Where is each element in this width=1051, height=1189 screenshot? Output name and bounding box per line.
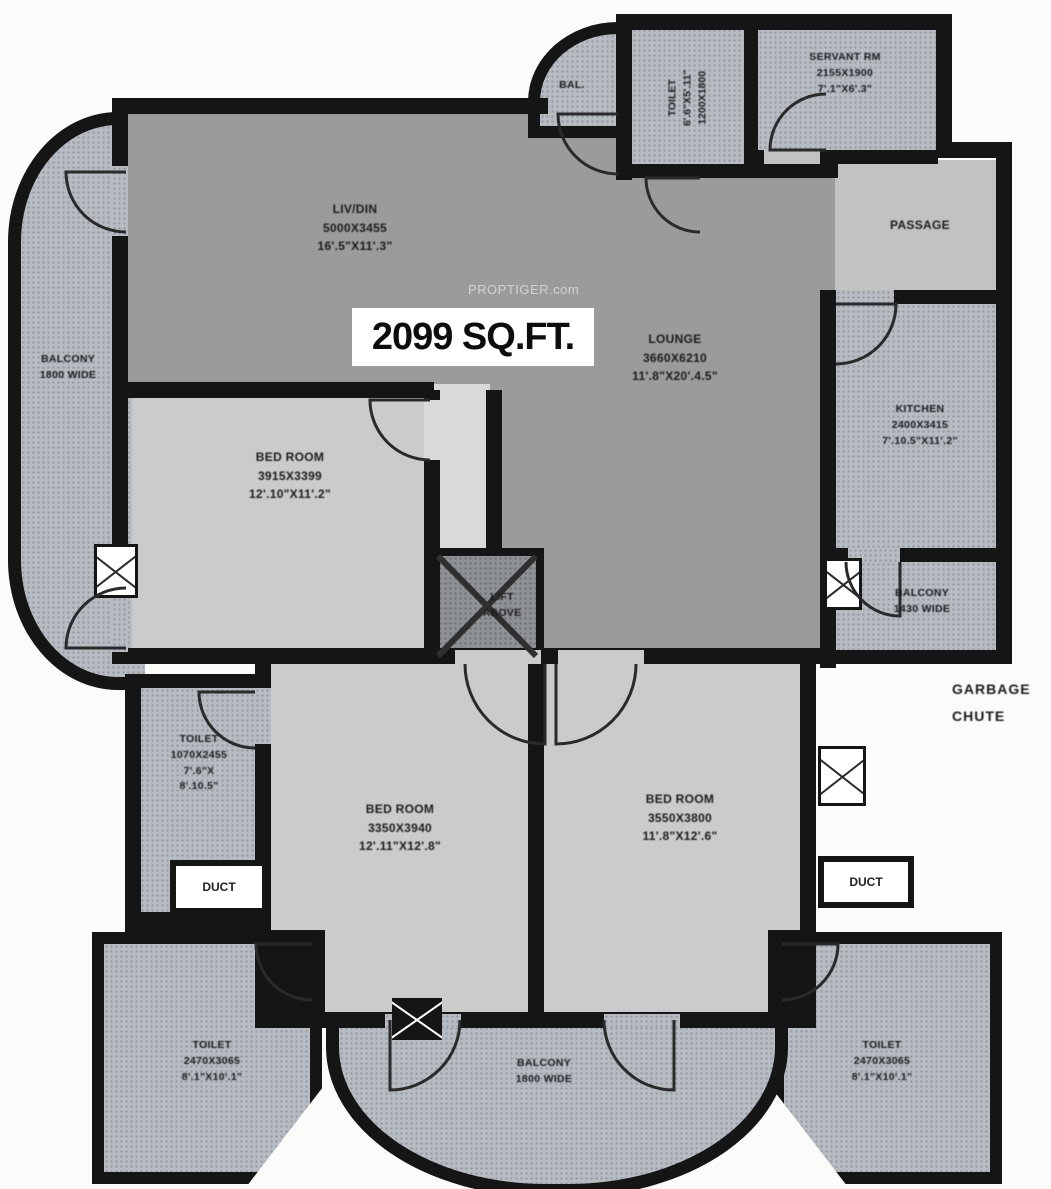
wall-segment <box>125 912 271 932</box>
floor-plan: 2099 SQ.FT. PROPTIGER.com LIV/DIN 5000X3… <box>0 0 1051 1189</box>
living-label: LIV/DIN 5000X3455 16'.5"X11'.3" <box>255 200 455 256</box>
toilet-top-label: TOILET 6'.6"X5'.11" 1200X1800 <box>665 70 711 126</box>
wall-segment <box>936 14 952 158</box>
toilet-mid-label: TOILET 1070X2455 7'.6"X 8'.10.5" <box>148 732 250 795</box>
door-opening <box>764 150 820 164</box>
wall-segment <box>125 674 271 688</box>
bedroom-1 <box>132 390 430 664</box>
kitchen-label: KITCHEN 2400X3415 7'.10.5"X11'.2" <box>850 402 990 449</box>
balcony-bottom-room <box>326 1016 788 1189</box>
garbage-chute-label: GARBAGE CHUTE <box>952 676 1051 729</box>
toilet-top-label-wrap: TOILET 6'.6"X5'.11" 1200X1800 <box>632 28 744 168</box>
window-marker <box>94 544 138 598</box>
shaft-marker <box>818 746 866 806</box>
wall-segment <box>255 930 325 1014</box>
lift-label: LIFT ABOVE <box>462 590 542 622</box>
bedroom1-label: BED ROOM 3915X3399 12'.10"X11'.2" <box>180 448 400 504</box>
wall-segment <box>112 98 548 114</box>
duct-left: DUCT <box>170 860 268 914</box>
wall-segment <box>744 26 758 166</box>
total-area-label: 2099 SQ.FT. <box>352 308 594 366</box>
balcony-bottom-label: BALCONY 1800 WIDE <box>478 1056 610 1088</box>
balcony-left-label: BALCONY 1800 WIDE <box>16 352 120 384</box>
window-marker <box>824 558 862 610</box>
vent-marker <box>392 998 442 1040</box>
door-opening <box>558 650 644 664</box>
bedroom3-label: BED ROOM 3550X3800 11'.8"X12'.6" <box>575 790 785 846</box>
balcony-right-label: BALCONY 1430 WIDE <box>862 586 982 618</box>
wall-segment <box>486 390 502 548</box>
door-opening <box>255 688 271 744</box>
duct-right: DUCT <box>818 856 914 908</box>
door-opening <box>836 290 894 304</box>
wall-segment <box>820 290 836 548</box>
door-opening <box>604 1014 680 1028</box>
watermark: PROPTIGER.com <box>468 282 579 297</box>
duct-left-label: DUCT <box>202 880 235 894</box>
wall-segment <box>996 142 1012 664</box>
duct-right-label: DUCT <box>849 875 882 889</box>
wall-segment <box>125 674 141 932</box>
wall-segment <box>768 930 816 1014</box>
door-opening <box>424 400 440 460</box>
wall-segment <box>616 14 632 180</box>
bedroom2-label: BED ROOM 3350X3940 12'.11"X12'.8" <box>295 800 505 856</box>
balcony-top-label: BAL. <box>544 78 600 94</box>
lounge-label: LOUNGE 3660X6210 11'.8"X20'.4.5" <box>575 330 775 386</box>
wall-segment <box>255 1012 816 1028</box>
toilet-bottom-right-label: TOILET 2470X3065 8'.1"X10'.1" <box>792 1038 972 1085</box>
door-opening <box>455 650 541 664</box>
wall-segment <box>820 650 1012 664</box>
wall-segment <box>528 664 544 1012</box>
toilet-bottom-left-label: TOILET 2470X3065 8'.1"X10'.1" <box>122 1038 302 1085</box>
passage-label: PASSAGE <box>855 216 985 235</box>
wall-segment <box>112 382 434 398</box>
door-opening <box>112 166 128 236</box>
servant-room-label: SERVANT RM 2155X1900 7'.1"X6'.3" <box>765 50 925 97</box>
